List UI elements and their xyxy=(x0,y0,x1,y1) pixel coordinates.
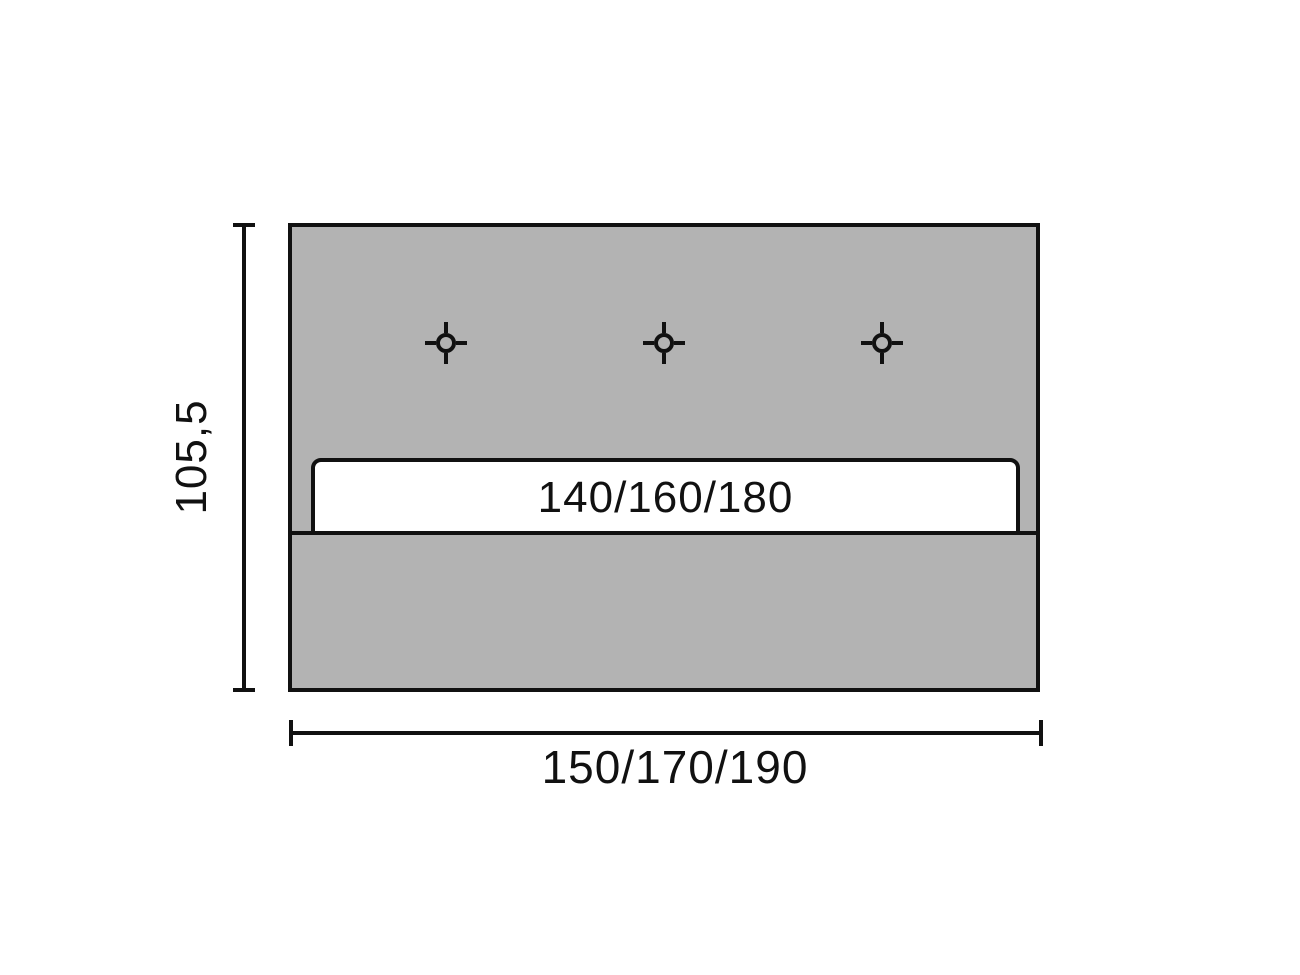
height-dimension-line xyxy=(233,223,255,692)
headboard-panel: 140/160/180 xyxy=(288,223,1040,692)
crosshair-drill-mark-icon xyxy=(424,321,468,365)
slot-width-label: 140/160/180 xyxy=(538,474,794,520)
crosshair-drill-mark-icon xyxy=(860,321,904,365)
width-dimension-label: 150/170/190 xyxy=(542,740,809,794)
dimension-line xyxy=(242,223,246,692)
slat-slot: 140/160/180 xyxy=(311,458,1020,535)
height-dimension-label: 105,5 xyxy=(167,399,217,514)
dimension-line xyxy=(289,731,1043,735)
dimension-cap xyxy=(1039,720,1043,746)
dimension-cap xyxy=(233,688,255,692)
dimension-diagram: 140/160/180 105,5 150/170/190 xyxy=(0,0,1300,975)
crosshair-drill-mark-icon xyxy=(642,321,686,365)
